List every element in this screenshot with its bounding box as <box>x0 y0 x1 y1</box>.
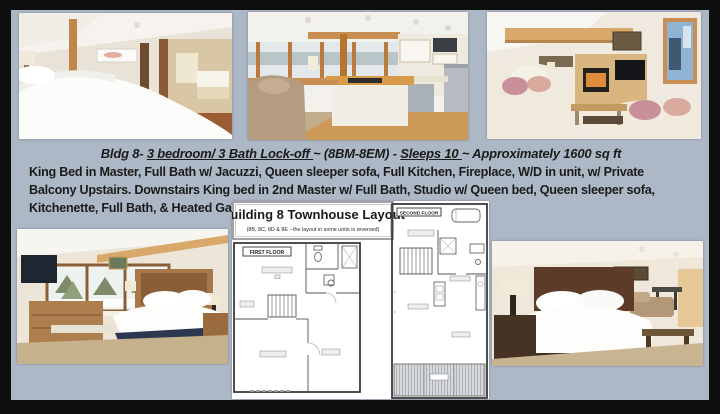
flyer-frame: Bldg 8- 3 bedroom/ 3 Bath Lock-off ~ (8B… <box>0 0 720 414</box>
second-floor-label: SECOND FLOOR <box>400 210 439 216</box>
floorplan-diagram: Building 8 Townhouse Layout (8B, 8C, 8D … <box>232 201 489 399</box>
headline-sleeps-underlined: Sleeps 10 <box>400 146 462 161</box>
kitchen-image <box>248 12 468 140</box>
first-floor-label: FIRST FLOOR <box>250 250 285 256</box>
floorplan-panel: Building 8 Townhouse Layout (8B, 8C, 8D … <box>232 201 489 399</box>
flyer-background: Bldg 8- 3 bedroom/ 3 Bath Lock-off ~ (8B… <box>11 10 709 400</box>
king-bedroom-image <box>17 229 228 364</box>
headline-bldg: Bldg 8- <box>101 146 147 161</box>
listing-headline: Bldg 8- 3 bedroom/ 3 Bath Lock-off ~ (8B… <box>29 146 693 161</box>
headline-sqft: ~ Approximately 1600 sq ft <box>462 146 621 161</box>
floorplan-subtitle: (8B, 8C, 8D & 8E --the layout in some un… <box>247 227 380 233</box>
floorplan-title: Building 8 Townhouse Layout <box>232 207 406 222</box>
living-room-image <box>487 12 701 139</box>
studio-bedroom-image <box>492 241 703 366</box>
headline-bed-bath-underlined: 3 bedroom/ 3 Bath Lock-off <box>147 146 313 161</box>
headline-unit-code: ~ (8BM-8EM) - <box>313 146 400 161</box>
photo-studio-bedroom <box>492 241 703 366</box>
master-bedroom-image <box>19 13 232 139</box>
floorplan-title-box: Building 8 Townhouse Layout (8B, 8C, 8D … <box>232 202 406 239</box>
photo-kitchen <box>248 12 468 140</box>
photo-king-bedroom <box>17 229 228 364</box>
photo-living-room <box>487 12 701 139</box>
photo-master-bedroom <box>19 13 232 139</box>
deck-area <box>394 364 485 396</box>
